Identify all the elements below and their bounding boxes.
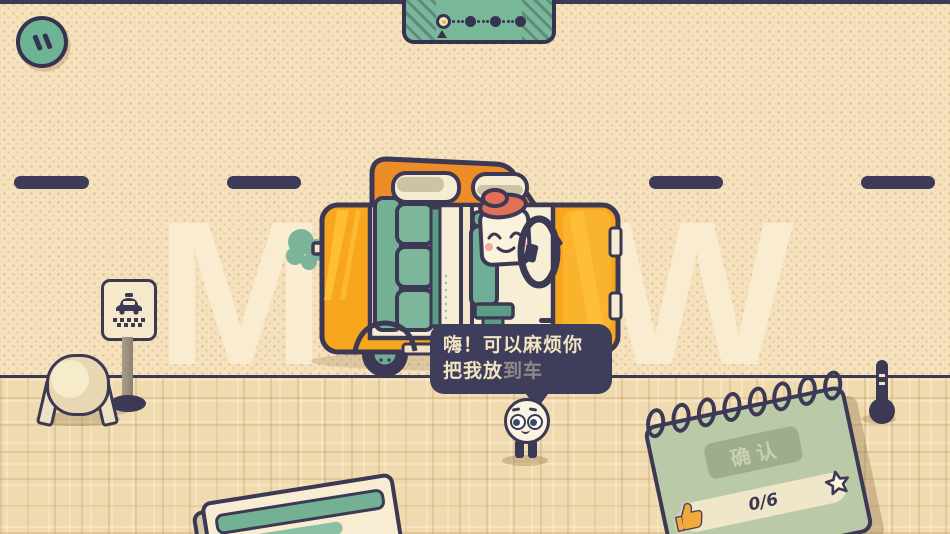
dialogue-line2: 把我放 (443, 360, 503, 382)
taxi-checker-icon (113, 318, 145, 327)
level-node (490, 16, 501, 27)
barrel-opening (51, 360, 89, 398)
road-dash (14, 176, 89, 189)
dialogue-line2-typing: 到车 (503, 360, 543, 382)
level-node (465, 16, 476, 27)
hatch-decor (522, 0, 552, 40)
current-level-marker-icon (437, 30, 447, 38)
bench-seat[interactable] (375, 198, 440, 330)
pause-icon (32, 34, 43, 51)
door-hinge (610, 293, 621, 319)
road-dash (649, 176, 723, 189)
star-icon[interactable] (818, 465, 856, 503)
task-notepad: 确认 0/6 (643, 384, 875, 534)
watermark-letter-right: W (600, 212, 794, 376)
taxi-stop-sign (101, 279, 157, 341)
game-scene: M W (0, 0, 950, 534)
sign-pole (122, 337, 133, 399)
road-dash (861, 176, 935, 189)
taxi-icon (114, 293, 144, 315)
door-hinge (610, 228, 621, 256)
current-level-node (436, 14, 451, 29)
taxi-sign-plate (101, 279, 157, 341)
thermometer-bulb (869, 398, 895, 424)
level-progress-panel (402, 0, 556, 44)
thermometer (866, 360, 898, 424)
barrel (40, 352, 114, 426)
level-progress-nodes (436, 14, 526, 29)
smile-icon (521, 427, 530, 434)
goal-progress-count: 0/6 (747, 490, 780, 516)
character-shadow (502, 455, 548, 466)
character-head (504, 398, 550, 444)
thumbs-up-icon (666, 496, 709, 534)
hatch-decor (406, 0, 436, 40)
dialogue-line1: 嗨！可以麻烦你 (443, 334, 583, 356)
small-character[interactable] (498, 398, 554, 466)
speech-bubble[interactable]: 嗨！可以麻烦你 把我放到车 (430, 324, 612, 394)
body-detail (539, 318, 555, 323)
level-node (515, 16, 526, 27)
